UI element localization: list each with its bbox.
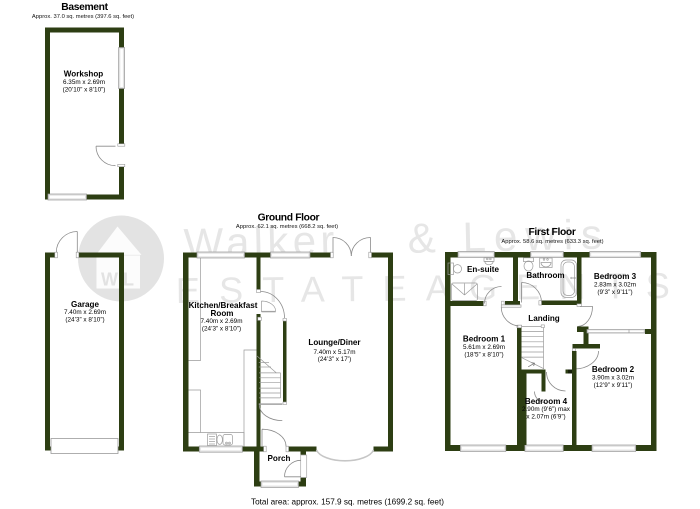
svg-text:x 2.07m (6’9”): x 2.07m (6’9”) [526,413,565,420]
svg-text:Total area: approx. 157.9 sq.: Total area: approx. 157.9 sq. metres (16… [251,498,444,507]
svg-text:(9’3” x 9’11”): (9’3” x 9’11”) [597,289,632,296]
svg-text:Approx. 58.6 sq. metres (633.3: Approx. 58.6 sq. metres (633.3 sq. feet) [501,239,603,245]
svg-text:(24’3” x 8’10”): (24’3” x 8’10”) [65,317,104,324]
svg-text:Approx. 62.1 sq. metres (668.2: Approx. 62.1 sq. metres (668.2 sq. feet) [236,224,338,230]
svg-text:7.40m x 5.17m: 7.40m x 5.17m [314,349,356,356]
svg-text:Bedroom 3: Bedroom 3 [594,272,637,281]
svg-text:En-suite: En-suite [467,265,499,274]
svg-text:7.40m x 2.69m: 7.40m x 2.69m [64,309,106,316]
svg-text:Landing: Landing [528,314,560,323]
svg-text:Basement: Basement [61,2,108,13]
svg-text:2.83m x 3.02m: 2.83m x 3.02m [594,282,636,289]
svg-text:Room: Room [211,309,234,318]
svg-text:Porch: Porch [268,454,291,463]
svg-text:(18’5” x 8’10”): (18’5” x 8’10”) [464,351,503,358]
svg-text:Lounge/Diner: Lounge/Diner [308,338,361,347]
svg-text:Approx. 37.0 sq. metres (397.6: Approx. 37.0 sq. metres (397.6 sq. feet) [32,14,134,20]
svg-text:Bathroom: Bathroom [526,271,564,280]
svg-text:5.61m x 2.69m: 5.61m x 2.69m [463,344,505,351]
svg-text:Garage: Garage [71,300,99,309]
svg-text:2.90m (9’6”) max: 2.90m (9’6”) max [522,406,571,413]
svg-text:3.90m x 3.02m: 3.90m x 3.02m [592,375,634,382]
svg-text:6.35m x 2.69m: 6.35m x 2.69m [63,79,105,86]
svg-text:Bedroom 1: Bedroom 1 [463,335,506,344]
svg-text:Bedroom 2: Bedroom 2 [592,365,635,374]
svg-text:(12’9” x 9’11”): (12’9” x 9’11”) [594,382,633,389]
svg-text:Ground Floor: Ground Floor [258,213,320,224]
svg-text:(24’3” x 17’): (24’3” x 17’) [318,356,352,363]
svg-text:W L: W L [101,270,134,290]
svg-text:Workshop: Workshop [64,69,103,78]
svg-text:Bedroom 4: Bedroom 4 [525,397,568,406]
svg-text:First Floor: First Floor [528,227,575,238]
svg-text:&: & [407,214,436,262]
svg-text:(24’3” x 8’10”): (24’3” x 8’10”) [202,326,241,333]
svg-text:7.40m x 2.69m: 7.40m x 2.69m [201,318,243,325]
svg-text:(20’10” x 8’10”): (20’10” x 8’10”) [63,87,106,94]
